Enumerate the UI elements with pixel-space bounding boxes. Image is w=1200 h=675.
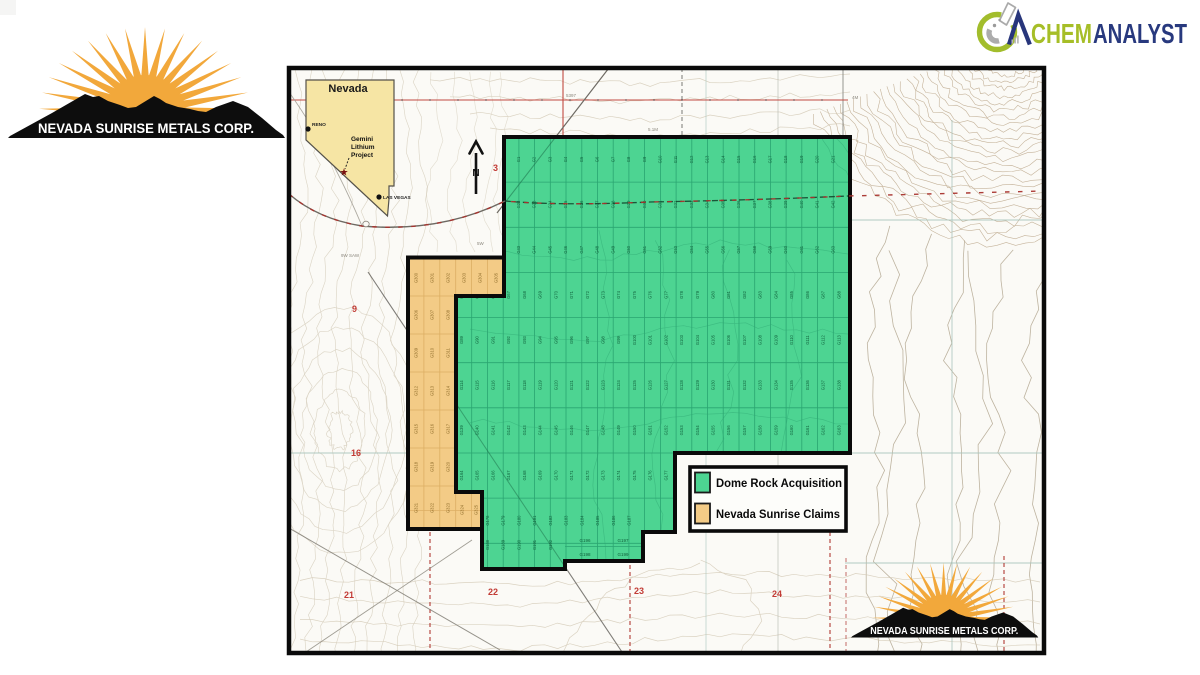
svg-text:G320: G320 xyxy=(446,461,451,472)
svg-text:G315: G315 xyxy=(414,423,419,434)
svg-text:G77: G77 xyxy=(663,290,668,298)
svg-text:G179: G179 xyxy=(501,515,506,526)
svg-text:G11: G11 xyxy=(673,155,678,163)
svg-text:G143: G143 xyxy=(522,425,527,436)
svg-text:G102: G102 xyxy=(663,334,668,345)
svg-text:G84: G84 xyxy=(773,290,778,298)
svg-text:G167: G167 xyxy=(506,470,511,481)
svg-text:G318: G318 xyxy=(414,461,419,472)
svg-text:Nevada: Nevada xyxy=(328,83,368,95)
svg-text:5W: 5W xyxy=(477,241,485,246)
svg-text:G300: G300 xyxy=(414,272,419,283)
svg-text:G177: G177 xyxy=(663,470,668,481)
svg-text:G43: G43 xyxy=(516,245,521,253)
svg-text:G161: G161 xyxy=(805,425,810,436)
svg-text:G83: G83 xyxy=(758,290,763,298)
svg-text:G42: G42 xyxy=(830,200,835,208)
svg-text:ANALYST: ANALYST xyxy=(1093,18,1187,49)
svg-text:G127: G127 xyxy=(663,379,668,390)
svg-text:G1: G1 xyxy=(516,156,521,162)
svg-text:G69: G69 xyxy=(538,290,543,298)
svg-text:G140: G140 xyxy=(475,425,480,436)
svg-text:N: N xyxy=(472,168,479,179)
svg-text:G28: G28 xyxy=(610,200,615,208)
svg-text:G115: G115 xyxy=(475,380,480,390)
svg-text:G41: G41 xyxy=(815,200,820,208)
svg-text:G48: G48 xyxy=(595,245,600,253)
svg-text:G61: G61 xyxy=(799,245,804,253)
svg-text:24: 24 xyxy=(772,589,782,599)
svg-text:G98: G98 xyxy=(601,336,606,344)
svg-text:LAS VEGAS: LAS VEGAS xyxy=(383,195,412,201)
svg-text:G164: G164 xyxy=(459,470,464,481)
svg-text:G168: G168 xyxy=(522,470,527,481)
svg-text:G94: G94 xyxy=(538,336,543,344)
svg-text:G51: G51 xyxy=(642,245,647,253)
svg-text:G138: G138 xyxy=(836,379,841,390)
svg-text:G172: G172 xyxy=(585,470,590,481)
svg-text:G158: G158 xyxy=(758,425,763,436)
svg-text:21: 21 xyxy=(344,590,354,600)
svg-text:G53: G53 xyxy=(673,245,678,253)
svg-text:G323: G323 xyxy=(446,502,451,513)
svg-text:G317: G317 xyxy=(446,423,451,434)
svg-text:G171: G171 xyxy=(569,470,574,481)
svg-text:G72: G72 xyxy=(585,290,590,298)
svg-text:G170: G170 xyxy=(553,470,558,481)
svg-text:G47: G47 xyxy=(579,245,584,253)
svg-text:G15: G15 xyxy=(736,155,741,163)
svg-text:G301: G301 xyxy=(430,272,435,283)
svg-text:G304: G304 xyxy=(478,272,483,283)
svg-text:G86: G86 xyxy=(805,290,810,298)
svg-text:G319: G319 xyxy=(430,461,435,472)
svg-text:G87: G87 xyxy=(821,290,826,298)
svg-text:G129: G129 xyxy=(695,379,700,390)
svg-text:G13: G13 xyxy=(705,155,710,163)
svg-text:G109: G109 xyxy=(773,334,778,345)
svg-text:G169: G169 xyxy=(538,470,543,481)
svg-text:3: 3 xyxy=(493,163,498,173)
svg-text:G116: G116 xyxy=(490,380,495,390)
svg-text:G95: G95 xyxy=(553,336,558,344)
svg-text:G119: G119 xyxy=(538,380,543,390)
svg-text:G20: G20 xyxy=(815,155,820,163)
svg-text:G311: G311 xyxy=(446,347,451,357)
svg-text:G101: G101 xyxy=(648,334,653,345)
svg-text:G180: G180 xyxy=(516,515,521,526)
svg-text:G160: G160 xyxy=(789,425,794,436)
svg-text:G90: G90 xyxy=(475,336,480,344)
svg-text:G189: G189 xyxy=(501,539,506,550)
svg-text:G192: G192 xyxy=(548,539,553,550)
svg-text:G166: G166 xyxy=(490,470,495,481)
svg-text:G3: G3 xyxy=(547,156,552,162)
svg-text:G50: G50 xyxy=(626,245,631,253)
svg-text:G178: G178 xyxy=(485,515,490,526)
svg-text:16: 16 xyxy=(351,448,361,458)
svg-text:G105: G105 xyxy=(711,334,716,345)
svg-text:G163: G163 xyxy=(836,425,841,436)
svg-text:G123: G123 xyxy=(601,379,606,390)
svg-text:G303: G303 xyxy=(462,272,467,283)
svg-text:G153: G153 xyxy=(679,425,684,436)
svg-text:G8: G8 xyxy=(626,156,631,162)
svg-text:G99: G99 xyxy=(616,336,621,344)
svg-text:G45: G45 xyxy=(547,245,552,253)
svg-text:G121: G121 xyxy=(569,379,574,390)
svg-text:G92: G92 xyxy=(506,336,511,344)
svg-text:G23: G23 xyxy=(532,200,537,208)
svg-text:G124: G124 xyxy=(616,379,621,390)
svg-text:G173: G173 xyxy=(601,470,606,481)
svg-text:G46: G46 xyxy=(563,245,568,253)
svg-text:G308: G308 xyxy=(446,309,451,320)
svg-text:G139: G139 xyxy=(459,425,464,436)
svg-text:G44: G44 xyxy=(532,245,537,253)
svg-text:G184: G184 xyxy=(579,515,584,526)
svg-text:G156: G156 xyxy=(726,425,731,436)
svg-text:G321: G321 xyxy=(414,502,419,513)
svg-text:G52: G52 xyxy=(658,245,663,253)
svg-text:G190: G190 xyxy=(516,539,521,550)
svg-text:G157: G157 xyxy=(742,425,747,436)
svg-text:G60: G60 xyxy=(783,245,788,253)
svg-text:G155: G155 xyxy=(711,425,716,436)
svg-text:G309: G309 xyxy=(414,347,419,358)
svg-text:G185: G185 xyxy=(595,515,600,526)
svg-text:G148: G148 xyxy=(601,425,606,436)
svg-text:G59: G59 xyxy=(768,245,773,253)
svg-text:G9: G9 xyxy=(642,156,647,162)
svg-text:G137: G137 xyxy=(821,379,826,390)
svg-text:G132: G132 xyxy=(742,379,747,390)
svg-text:G108: G108 xyxy=(758,334,763,345)
svg-text:G79: G79 xyxy=(695,290,700,298)
svg-text:G74: G74 xyxy=(616,290,621,298)
svg-text:G29: G29 xyxy=(626,200,631,208)
svg-text:G141: G141 xyxy=(490,425,495,436)
svg-text:G198: G198 xyxy=(579,552,591,557)
svg-text:G5: G5 xyxy=(579,156,584,162)
svg-text:G196: G196 xyxy=(579,538,591,543)
svg-text:G154: G154 xyxy=(695,425,700,436)
svg-text:G100: G100 xyxy=(632,334,637,345)
svg-text:★: ★ xyxy=(340,168,349,179)
svg-text:G106: G106 xyxy=(726,334,731,345)
svg-text:G307: G307 xyxy=(430,309,435,320)
svg-text:CHEM: CHEM xyxy=(1031,18,1092,49)
svg-text:G14: G14 xyxy=(720,155,725,163)
svg-text:G199: G199 xyxy=(617,552,629,557)
svg-text:RENO: RENO xyxy=(312,122,326,128)
svg-text:G144: G144 xyxy=(538,425,543,436)
svg-text:G322: G322 xyxy=(430,502,435,513)
svg-text:G162: G162 xyxy=(821,425,826,436)
svg-text:G324: G324 xyxy=(460,504,465,515)
svg-text:G197: G197 xyxy=(617,538,629,543)
svg-text:22: 22 xyxy=(488,587,498,597)
svg-text:G122: G122 xyxy=(585,379,590,390)
svg-text:G112: G112 xyxy=(821,335,826,345)
svg-text:G2: G2 xyxy=(532,156,537,162)
svg-text:G18: G18 xyxy=(783,155,788,163)
svg-text:G54: G54 xyxy=(689,245,694,253)
svg-text:G22: G22 xyxy=(516,200,521,208)
svg-text:G316: G316 xyxy=(430,423,435,434)
svg-text:G21: G21 xyxy=(830,155,835,163)
svg-text:G57: G57 xyxy=(736,245,741,253)
svg-text:G305: G305 xyxy=(494,272,499,283)
svg-text:G187: G187 xyxy=(627,515,632,526)
svg-text:G89: G89 xyxy=(459,336,464,344)
svg-text:G130: G130 xyxy=(711,379,716,390)
svg-text:G183: G183 xyxy=(564,515,569,526)
svg-text:G135: G135 xyxy=(789,379,794,390)
svg-text:G85: G85 xyxy=(789,290,794,298)
svg-text:G146: G146 xyxy=(569,425,574,436)
svg-text:G80: G80 xyxy=(711,290,716,298)
svg-text:G73: G73 xyxy=(601,290,606,298)
svg-text:G159: G159 xyxy=(773,425,778,436)
svg-text:Nevada Sunrise Claims: Nevada Sunrise Claims xyxy=(716,507,840,521)
svg-text:G6: G6 xyxy=(595,156,600,162)
svg-text:G4: G4 xyxy=(563,156,568,162)
svg-text:G63: G63 xyxy=(830,245,835,253)
svg-text:G12: G12 xyxy=(689,155,694,163)
svg-text:G70: G70 xyxy=(553,290,558,298)
svg-text:G313: G313 xyxy=(430,385,435,396)
svg-text:G62: G62 xyxy=(815,245,820,253)
svg-text:G36: G36 xyxy=(736,200,741,208)
svg-text:G147: G147 xyxy=(585,425,590,436)
svg-text:G37: G37 xyxy=(752,200,757,208)
svg-text:G125: G125 xyxy=(632,379,637,390)
svg-text:G38: G38 xyxy=(768,200,773,208)
svg-text:G152: G152 xyxy=(663,425,668,436)
svg-text:G176: G176 xyxy=(648,470,653,481)
svg-text:G104: G104 xyxy=(695,334,700,345)
svg-text:G55: G55 xyxy=(705,245,710,253)
svg-text:G182: G182 xyxy=(548,515,553,526)
svg-text:G117: G117 xyxy=(506,380,511,390)
svg-text:G10: G10 xyxy=(658,155,663,163)
svg-text:G75: G75 xyxy=(632,290,637,298)
svg-text:G142: G142 xyxy=(506,425,511,436)
svg-text:G78: G78 xyxy=(679,290,684,298)
svg-text:G16: G16 xyxy=(752,155,757,163)
svg-text:G39: G39 xyxy=(783,200,788,208)
svg-text:G302: G302 xyxy=(446,272,451,283)
svg-text:G136: G136 xyxy=(805,379,810,390)
svg-text:G306: G306 xyxy=(414,309,419,320)
svg-text:G71: G71 xyxy=(569,290,574,298)
svg-text:Project: Project xyxy=(351,152,374,159)
svg-text:G7: G7 xyxy=(610,156,615,162)
svg-text:G17: G17 xyxy=(768,155,773,163)
svg-text:Gemini: Gemini xyxy=(351,136,373,143)
svg-text:G126: G126 xyxy=(648,379,653,390)
svg-text:G56: G56 xyxy=(720,245,725,253)
svg-text:G186: G186 xyxy=(611,515,616,526)
svg-text:G103: G103 xyxy=(679,334,684,345)
svg-text:G40: G40 xyxy=(799,200,804,208)
svg-text:G111: G111 xyxy=(805,335,810,345)
svg-text:9: 9 xyxy=(352,304,357,314)
svg-text:NEVADA SUNRISE METALS CORP.: NEVADA SUNRISE METALS CORP. xyxy=(38,120,254,136)
svg-text:G114: G114 xyxy=(459,380,464,390)
svg-text:G145: G145 xyxy=(553,425,558,436)
svg-text:G188: G188 xyxy=(485,539,490,550)
svg-text:G19: G19 xyxy=(799,155,804,163)
svg-text:NEVADA SUNRISE METALS CORP.: NEVADA SUNRISE METALS CORP. xyxy=(870,626,1018,637)
svg-text:G151: G151 xyxy=(648,425,653,436)
svg-text:G133: G133 xyxy=(758,379,763,390)
svg-text:G134: G134 xyxy=(773,379,778,390)
svg-text:Lithium: Lithium xyxy=(351,144,375,151)
svg-text:9W SAW: 9W SAW xyxy=(341,253,360,258)
svg-text:G325: G325 xyxy=(474,504,479,515)
svg-text:G149: G149 xyxy=(616,425,621,436)
svg-text:Dome Rock Acquisition: Dome Rock Acquisition xyxy=(716,476,842,490)
svg-text:G150: G150 xyxy=(632,425,637,436)
svg-text:G107: G107 xyxy=(742,334,747,345)
svg-text:G91: G91 xyxy=(490,336,495,344)
svg-text:G68: G68 xyxy=(522,290,527,298)
svg-text:G88: G88 xyxy=(836,290,841,298)
svg-text:G30: G30 xyxy=(642,200,647,208)
svg-text:G120: G120 xyxy=(553,379,558,390)
svg-text:23: 23 xyxy=(634,586,644,596)
svg-text:G165: G165 xyxy=(475,470,480,481)
svg-text:G93: G93 xyxy=(522,336,527,344)
svg-text:G131: G131 xyxy=(726,379,731,390)
svg-text:G174: G174 xyxy=(616,470,621,481)
svg-text:G128: G128 xyxy=(679,379,684,390)
svg-text:G175: G175 xyxy=(632,470,637,481)
svg-text:G82: G82 xyxy=(742,290,747,298)
svg-text:G67: G67 xyxy=(506,290,511,298)
svg-text:G181: G181 xyxy=(532,515,537,526)
svg-text:G310: G310 xyxy=(430,347,435,358)
svg-text:4M: 4M xyxy=(852,95,859,100)
svg-text:5397: 5397 xyxy=(566,93,577,98)
svg-text:G96: G96 xyxy=(569,336,574,344)
svg-text:G191: G191 xyxy=(532,539,537,550)
svg-text:G110: G110 xyxy=(789,335,794,345)
svg-text:5.1M: 5.1M xyxy=(648,127,658,132)
svg-text:G49: G49 xyxy=(610,245,615,253)
svg-text:G58: G58 xyxy=(752,245,757,253)
svg-text:G76: G76 xyxy=(648,290,653,298)
svg-text:G312: G312 xyxy=(414,385,419,396)
svg-text:G81: G81 xyxy=(726,290,731,298)
svg-text:G118: G118 xyxy=(522,380,527,390)
svg-text:G314: G314 xyxy=(446,385,451,396)
svg-text:G113: G113 xyxy=(836,335,841,345)
svg-text:G35: G35 xyxy=(720,200,725,208)
svg-text:G97: G97 xyxy=(585,336,590,344)
